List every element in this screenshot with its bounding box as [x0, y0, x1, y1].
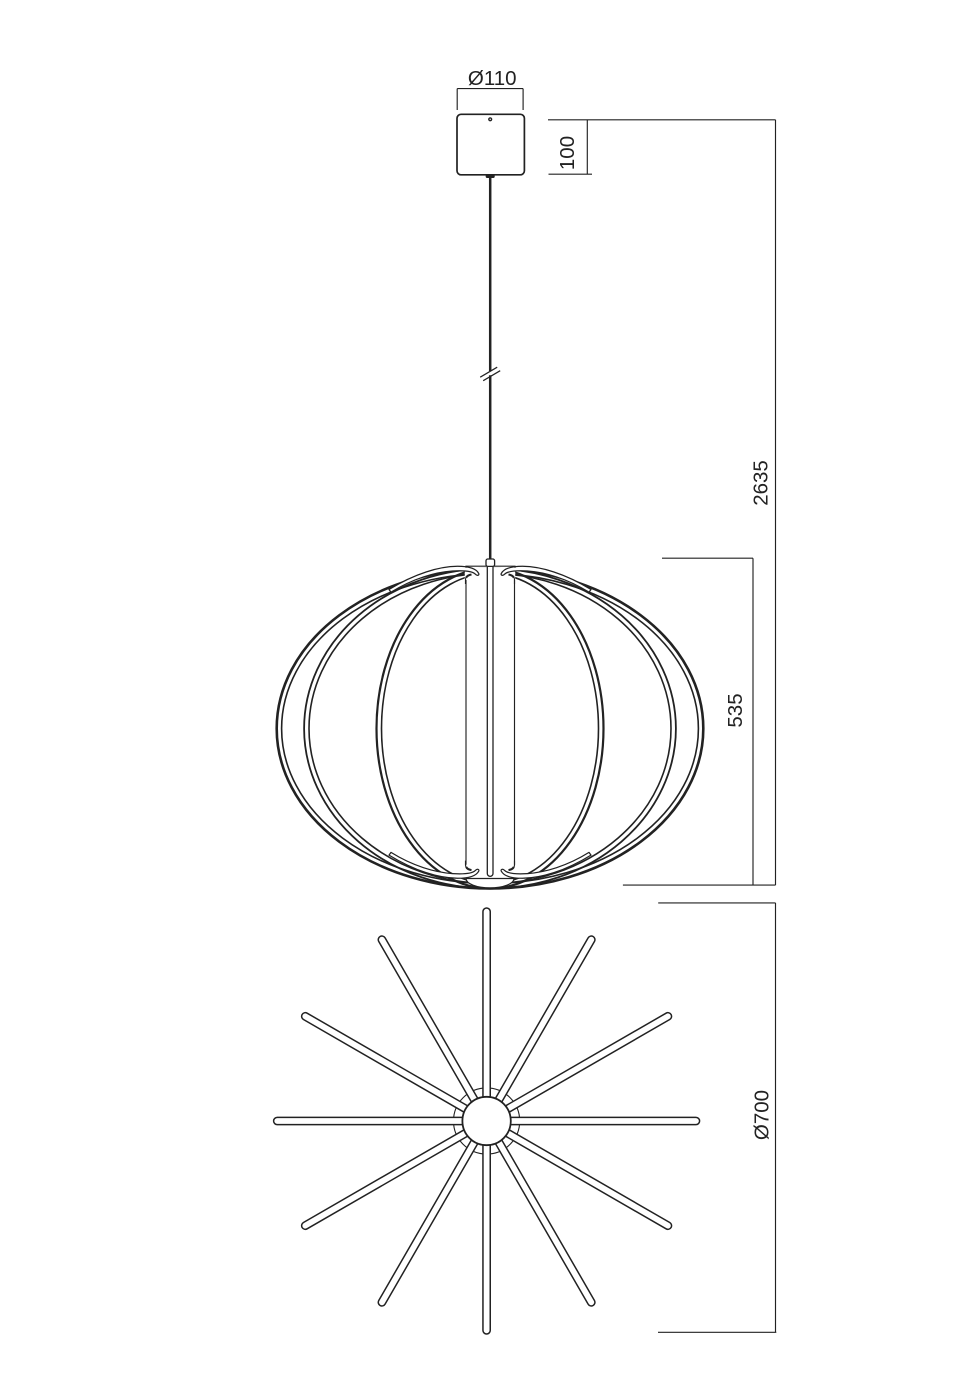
svg-text:2635: 2635	[750, 460, 773, 506]
svg-text:535: 535	[724, 693, 747, 727]
svg-text:Ø700: Ø700	[751, 1090, 774, 1140]
svg-text:Ø110: Ø110	[468, 67, 517, 90]
svg-text:100: 100	[556, 136, 579, 170]
